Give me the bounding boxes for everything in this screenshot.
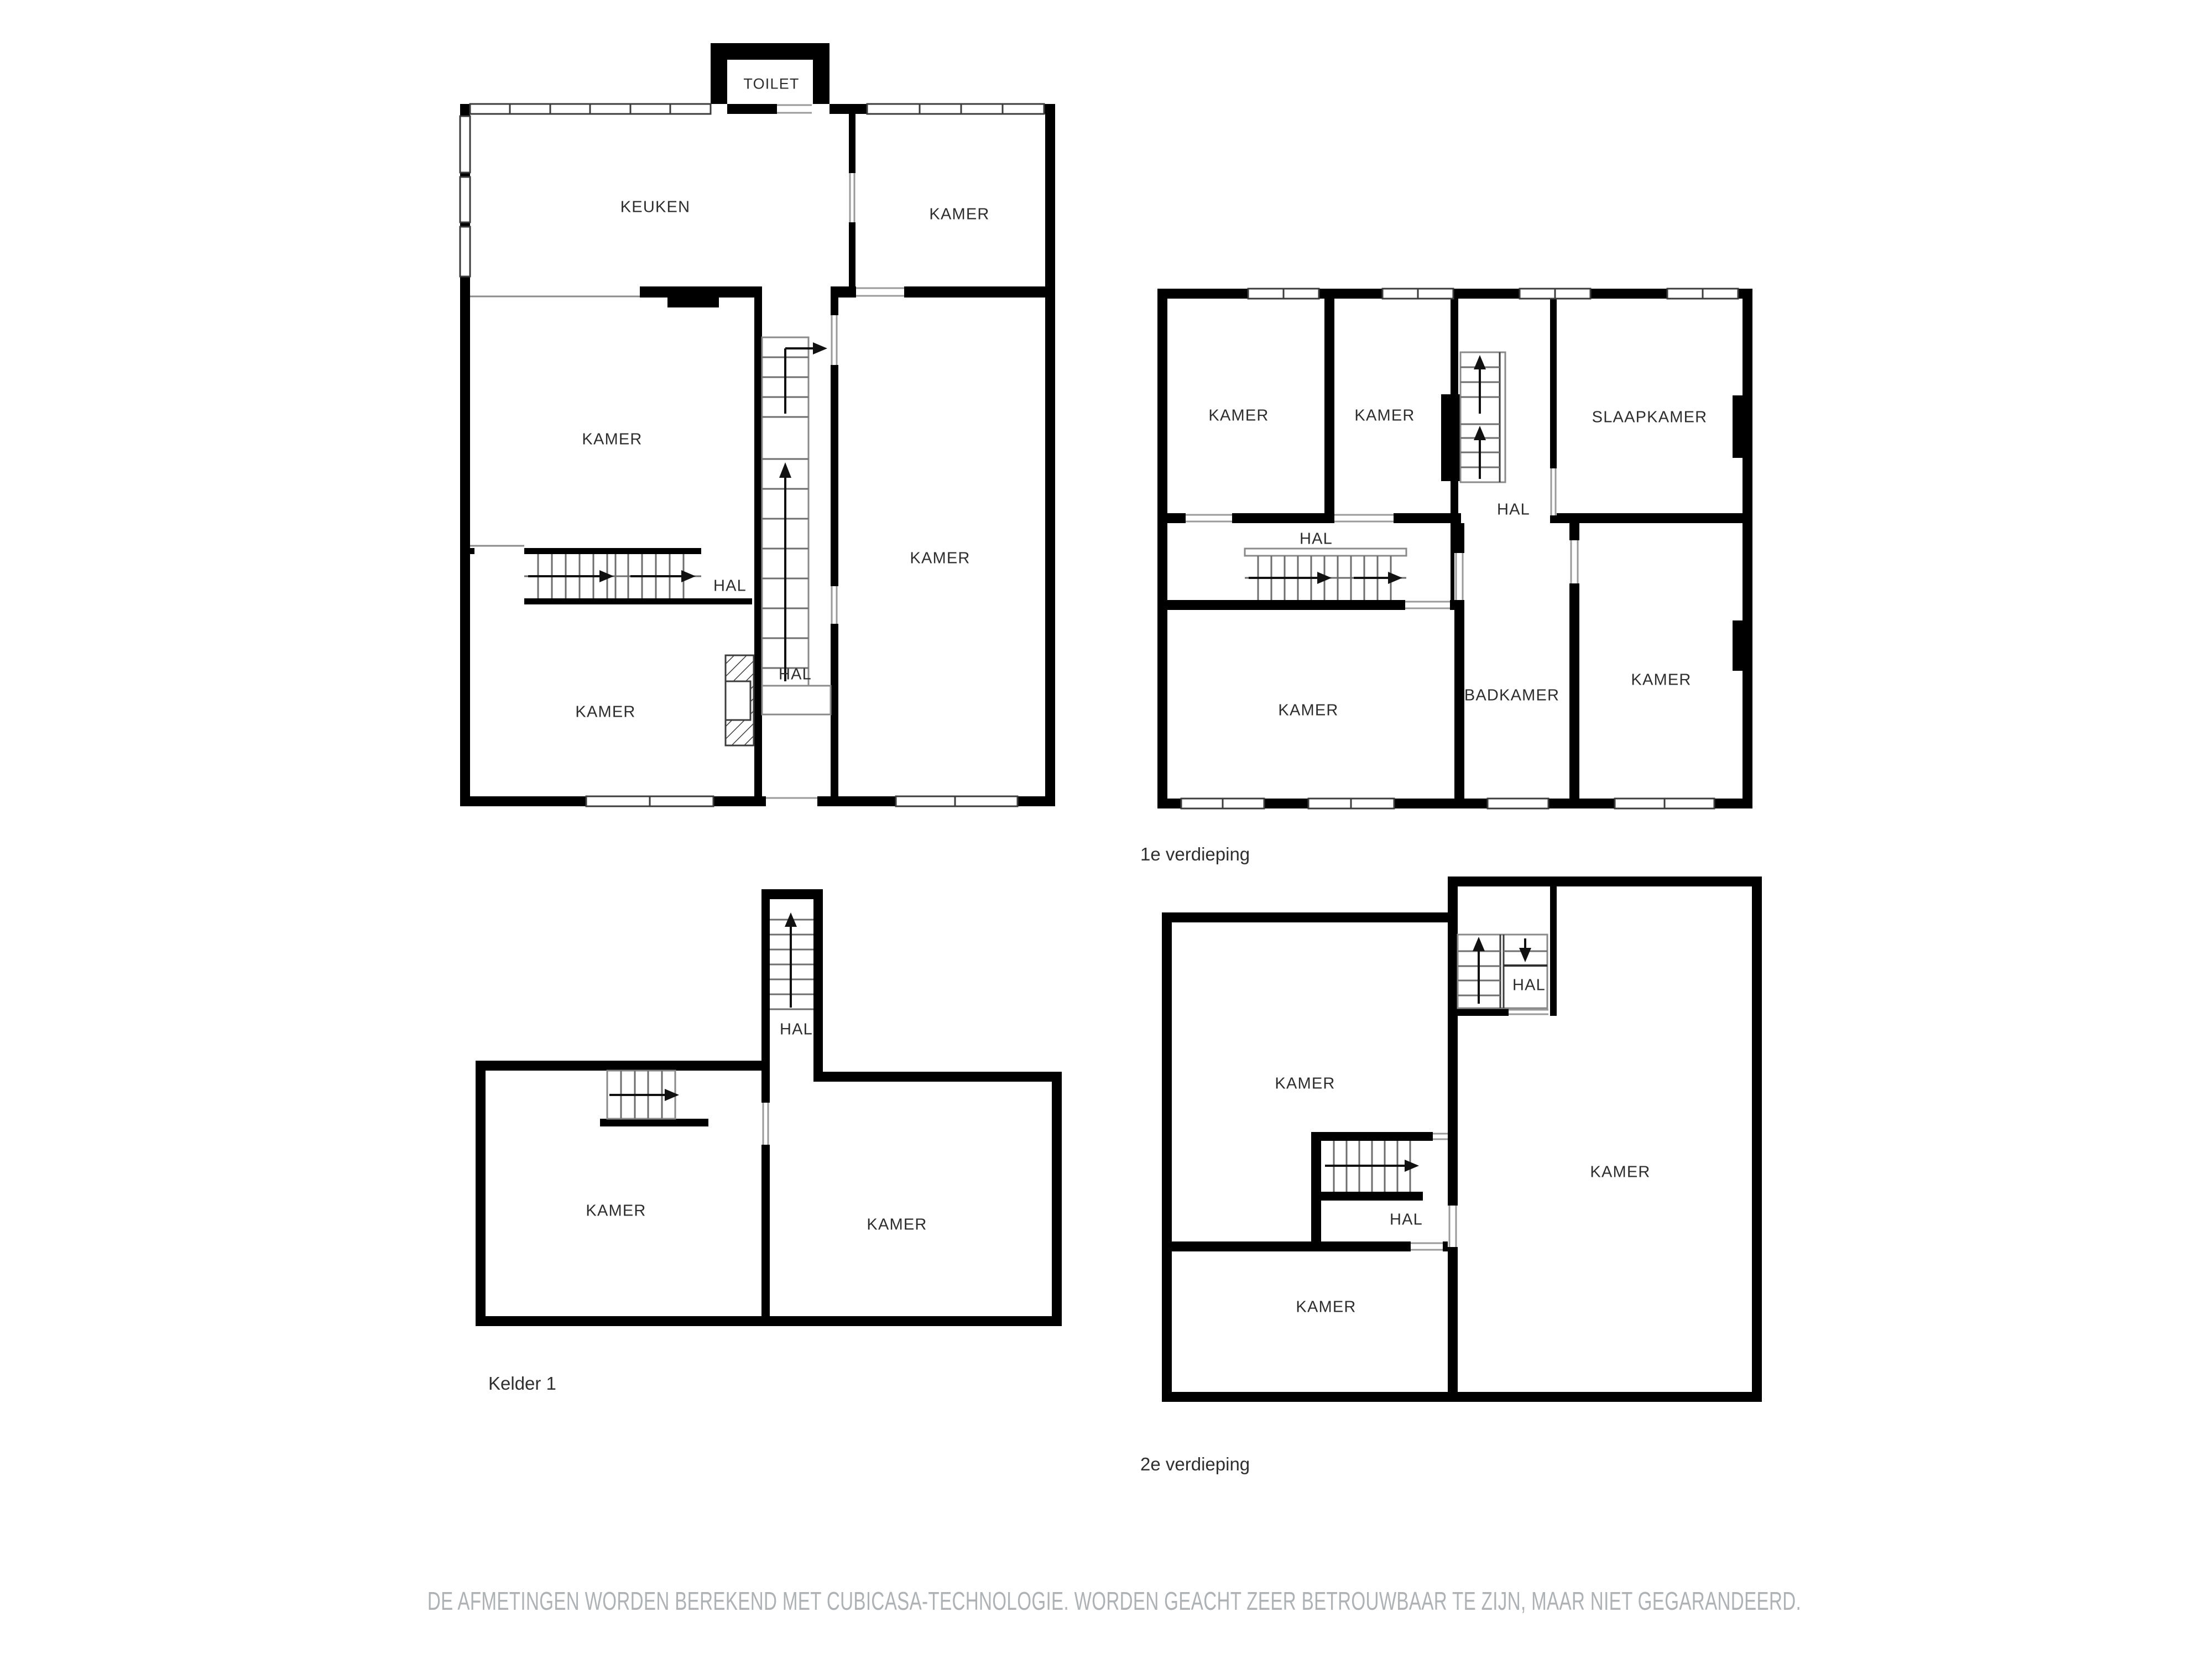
door-opening: [849, 173, 855, 222]
room-label-hal: HAL: [1300, 530, 1333, 549]
floor-title-first: 1e verdieping: [1140, 844, 1250, 865]
staircase-horizontal: [1325, 1141, 1419, 1192]
second-floor-plan: [1162, 877, 1762, 1402]
room-label-keuken: KEUKEN: [620, 199, 690, 217]
room-label-toilet: TOILET: [743, 76, 799, 93]
door-opening: [1433, 1132, 1448, 1141]
room-label-kamer: KAMER: [910, 550, 970, 568]
door-opening: [777, 104, 812, 114]
staircase-horizontal: [607, 1071, 679, 1119]
room-label-kamer: KAMER: [867, 1216, 927, 1234]
room-label-slaapkamer: SLAAPKAMER: [1592, 409, 1708, 427]
room-label-kamer: KAMER: [575, 703, 635, 722]
staircase-vertical: [762, 337, 831, 714]
room-label-badkamer: BADKAMER: [1464, 687, 1559, 705]
window: [470, 104, 711, 114]
ground-floor-plan: [460, 43, 1055, 806]
disclaimer-text: DE AFMETINGEN WORDEN BEREKEND MET CUBICA…: [427, 1586, 1801, 1616]
window: [867, 104, 920, 114]
room-label-kamer: KAMER: [1590, 1164, 1650, 1182]
staircase-vertical: [1458, 935, 1547, 1008]
staircase-vertical: [1460, 352, 1505, 482]
door-opening: [831, 586, 838, 624]
room-label-kamer: KAMER: [1631, 671, 1691, 690]
room-label-kamer: KAMER: [1296, 1298, 1356, 1317]
window: [920, 104, 1044, 114]
floorplan-page: TOILET KEUKEN KAMER KAMER KAMER HAL HAL …: [0, 0, 2212, 1659]
room-label-kamer: KAMER: [1275, 1075, 1335, 1093]
room-label-kamer: KAMER: [1278, 702, 1338, 720]
room-label-hal: HAL: [780, 1021, 813, 1039]
room-label-hal: HAL: [1497, 501, 1530, 519]
room-label-hal: HAL: [713, 577, 747, 596]
door-opening: [856, 286, 904, 298]
floorplan-canvas: [0, 0, 2212, 1659]
floor-title-basement: Kelder 1: [488, 1373, 556, 1394]
door-opening: [1550, 468, 1557, 515]
door-opening: [1509, 1008, 1548, 1016]
door-opening: [1186, 513, 1232, 523]
door-opening: [1334, 513, 1394, 523]
basement-plan: [476, 889, 1062, 1326]
staircase-horizontal: [524, 554, 701, 598]
first-floor-plan: [1157, 289, 1752, 808]
room-label-kamer: KAMER: [1208, 407, 1269, 425]
staircase-horizontal: [1245, 549, 1406, 600]
room-label-hal: HAL: [779, 666, 812, 684]
door-opening: [1405, 600, 1450, 610]
room-label-kamer: KAMER: [1354, 407, 1415, 425]
room-label-kamer: KAMER: [582, 431, 642, 449]
staircase-vertical: [770, 912, 813, 1009]
door-opening: [831, 315, 838, 365]
door-opening: [1411, 1241, 1443, 1251]
window: [460, 116, 470, 276]
entrance-opening: [766, 796, 817, 806]
chimney-hatch: [726, 655, 754, 745]
room-label-kamer: KAMER: [586, 1202, 646, 1220]
floor-title-second: 2e verdieping: [1140, 1454, 1250, 1475]
room-label-kamer: KAMER: [929, 206, 989, 224]
room-label-hal: HAL: [1512, 977, 1546, 995]
door-opening: [1569, 540, 1579, 583]
room-label-hal: HAL: [1390, 1211, 1423, 1229]
door-opening: [761, 1103, 770, 1145]
door-opening: [1448, 1206, 1458, 1247]
door-opening: [1454, 553, 1464, 600]
